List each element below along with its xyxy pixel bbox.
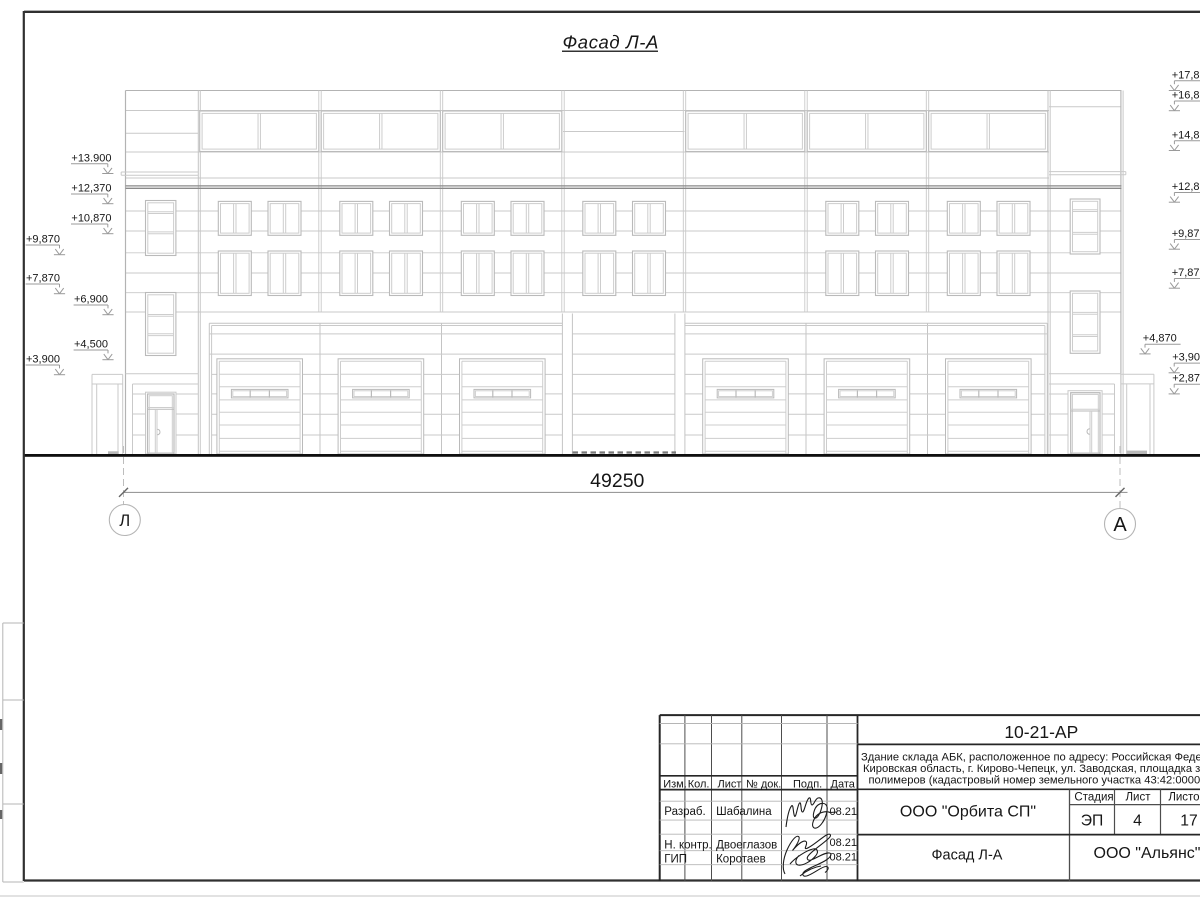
svg-text:4: 4: [1133, 812, 1142, 829]
svg-text:+4,870: +4,870: [1143, 333, 1177, 345]
svg-text:08.21: 08.21: [830, 852, 858, 864]
svg-text:Стадия: Стадия: [1074, 791, 1113, 803]
svg-text:Здание склада АБК, расположенн: Здание склада АБК, расположенное по адре…: [861, 752, 1200, 764]
svg-text:Кол.: Кол.: [688, 779, 710, 791]
svg-text:+16,870: +16,870: [1172, 90, 1200, 102]
svg-text:Лист: Лист: [718, 779, 742, 791]
svg-text:Изм.: Изм.: [663, 779, 687, 791]
svg-text:Н. контр.: Н. контр.: [664, 839, 711, 851]
svg-text:+2,870: +2,870: [1172, 373, 1200, 385]
svg-text:Лист: Лист: [1126, 791, 1152, 803]
svg-text:Фасад Л-А: Фасад Л-А: [932, 848, 1003, 864]
svg-text:Л: Л: [119, 512, 130, 530]
svg-text:49250: 49250: [590, 470, 644, 492]
svg-text:№ док.: № док.: [746, 779, 781, 791]
svg-text:+3,900: +3,900: [1172, 352, 1200, 364]
svg-text:17: 17: [1180, 812, 1197, 829]
svg-text:Фасад Л-А: Фасад Л-А: [563, 32, 659, 53]
svg-text:+6,900: +6,900: [74, 294, 108, 306]
svg-text:08.21: 08.21: [830, 837, 858, 849]
svg-text:Шабалина: Шабалина: [716, 806, 772, 818]
svg-text:полимеров (кадастровый номер з: полимеров (кадастровый номер земельного …: [869, 774, 1200, 786]
svg-text:+14,870: +14,870: [1172, 129, 1200, 141]
svg-text:10-21-АР: 10-21-АР: [1004, 722, 1078, 742]
svg-text:Кировская область, г. Кирово-Ч: Кировская область, г. Кирово-Чепецк, ул.…: [863, 763, 1200, 775]
svg-text:ООО "Орбита СП": ООО "Орбита СП": [900, 804, 1036, 821]
svg-text:ГИП: ГИП: [664, 853, 687, 865]
svg-text:+7,870: +7,870: [1172, 267, 1200, 279]
svg-text:Листов: Листов: [1168, 791, 1200, 803]
svg-text:Коротаев: Коротаев: [716, 853, 766, 865]
svg-text:ООО "Альянс": ООО "Альянс": [1094, 845, 1200, 862]
svg-text:+4,500: +4,500: [74, 339, 108, 351]
svg-text:+10,870: +10,870: [71, 213, 111, 225]
svg-text:+13.900: +13.900: [71, 152, 111, 164]
svg-text:Подп.: Подп.: [793, 779, 822, 791]
svg-text:+17,870: +17,870: [1172, 69, 1200, 81]
svg-text:+12,370: +12,370: [71, 183, 111, 195]
svg-text:+12,870: +12,870: [1172, 181, 1200, 193]
svg-text:Дата: Дата: [831, 779, 856, 791]
svg-text:+9,870: +9,870: [26, 234, 60, 246]
svg-text:+9,870: +9,870: [1172, 228, 1200, 240]
svg-text:Разраб.: Разраб.: [664, 806, 705, 818]
svg-text:+3,900: +3,900: [26, 354, 60, 366]
svg-text:Двоеглазов: Двоеглазов: [716, 839, 777, 851]
svg-text:+7,870: +7,870: [26, 273, 60, 285]
svg-text:А: А: [1113, 514, 1127, 536]
svg-text:ЭП: ЭП: [1081, 812, 1104, 829]
